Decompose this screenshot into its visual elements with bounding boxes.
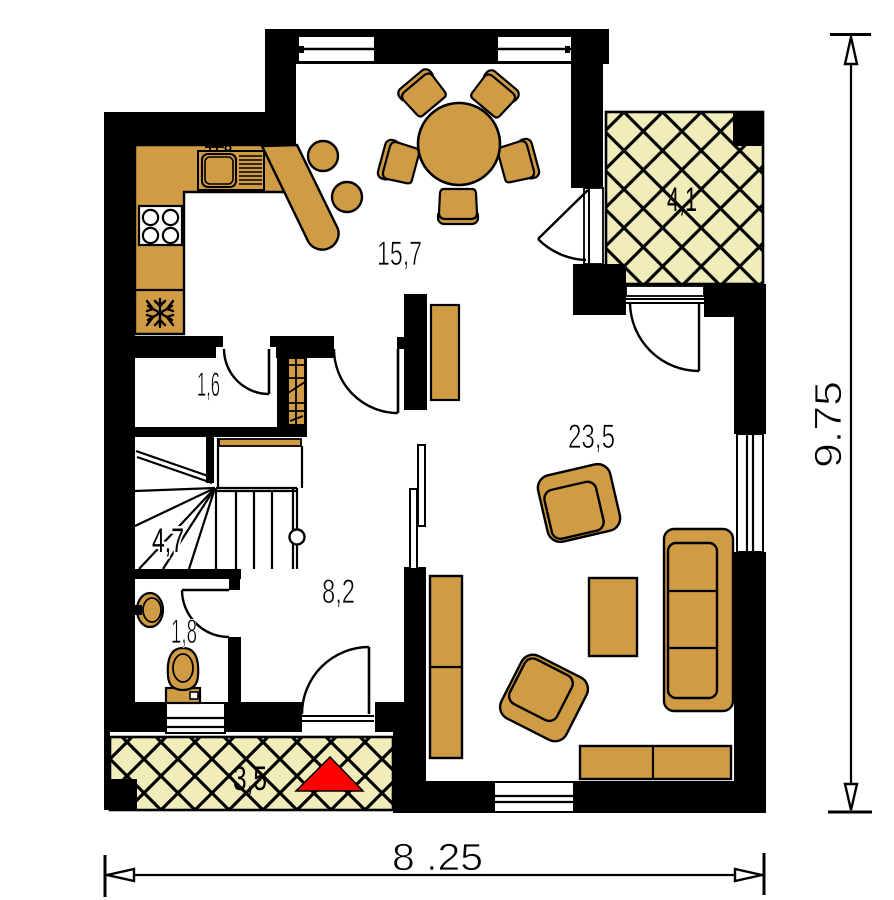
- svg-text:15,7: 15,7: [377, 235, 422, 273]
- svg-text:8,2: 8,2: [322, 573, 355, 611]
- svg-text:3,5: 3,5: [233, 760, 267, 798]
- svg-text:1,6: 1,6: [197, 366, 220, 404]
- svg-text:4,1: 4,1: [667, 181, 697, 219]
- svg-text:23,5: 23,5: [568, 418, 615, 456]
- svg-text:4,7: 4,7: [152, 522, 184, 560]
- svg-text:8 .25: 8 .25: [392, 837, 483, 879]
- svg-text:1,8: 1,8: [171, 613, 197, 651]
- svg-text:9.75: 9.75: [808, 381, 850, 468]
